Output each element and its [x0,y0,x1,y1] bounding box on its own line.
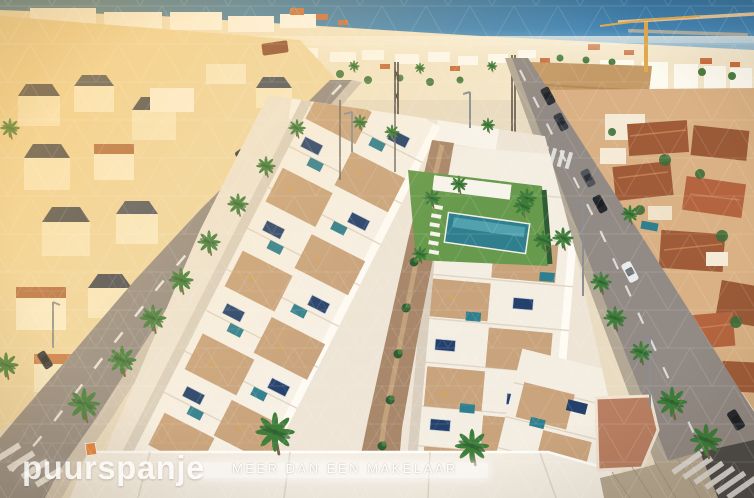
property-aerial-photo: puurspanje MEER DAN EEN MAKELAAR [0,0,754,498]
brand-logo: puurspanje [22,451,205,484]
scene [0,0,754,498]
brand-tagline: MEER DAN EEN MAKELAAR [232,460,458,478]
